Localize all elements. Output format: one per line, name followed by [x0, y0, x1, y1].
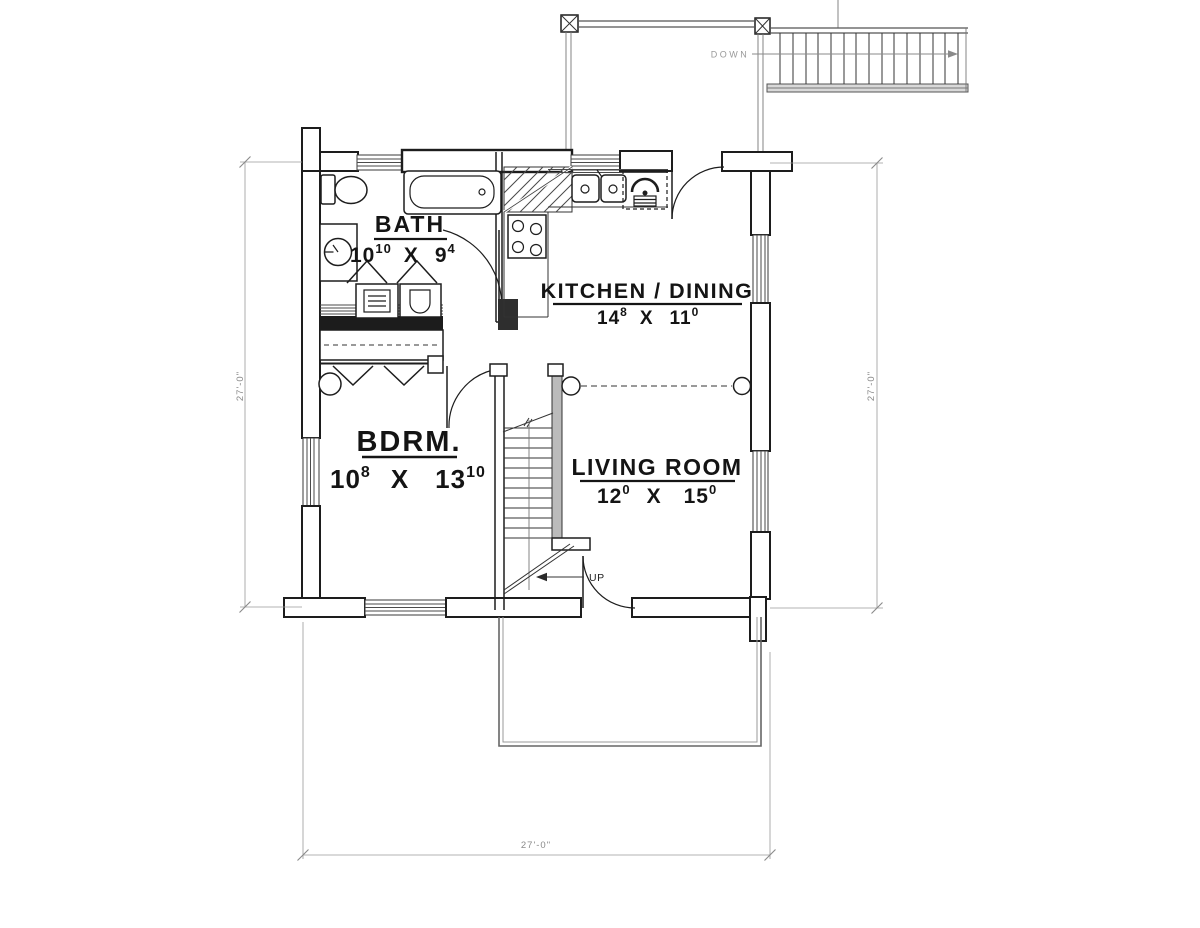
post-icon: [319, 373, 341, 395]
down-arrowhead-icon: [948, 50, 958, 58]
entry-door: [672, 167, 724, 219]
wall-end-cap: [548, 364, 563, 376]
bath-label: BATH 1010X94: [350, 211, 456, 267]
window-top-2: [571, 155, 620, 170]
floor-plan-page: DOWN: [0, 0, 1200, 928]
post-icon: [562, 377, 580, 395]
up-arrowhead-icon: [536, 573, 547, 581]
stair-treads: [780, 33, 958, 84]
beam-and-posts: [319, 366, 751, 395]
washer-icon: [356, 284, 398, 318]
corner-log: [750, 597, 766, 641]
dimension-right: 27'-0": [770, 158, 883, 614]
kitchen-sink-icon: [572, 170, 626, 202]
window-left: [303, 438, 319, 506]
bifold-door-marks: [333, 366, 424, 385]
bedroom-closet: [320, 330, 443, 373]
kitchen-dimensions: 148X110: [597, 305, 699, 329]
svg-text:27'-0": 27'-0": [521, 840, 551, 851]
dimension-left: 27'-0": [235, 157, 302, 613]
range-icon: [508, 215, 546, 258]
svg-text:KITCHEN / DINING: KITCHEN / DINING: [541, 279, 754, 303]
deck-edge-left: [566, 32, 571, 152]
wall-end-cap: [490, 364, 507, 376]
window-top-1: [357, 155, 402, 170]
stair-wall-right: [552, 375, 562, 538]
counter-end-wall: [498, 299, 518, 330]
svg-text:LIVING ROOM: LIVING ROOM: [571, 454, 742, 480]
corner-log: [722, 152, 792, 171]
wall-end-cap: [428, 356, 443, 373]
toilet-icon: [321, 175, 367, 204]
refrigerator-icon: [623, 171, 667, 209]
upper-deck: DOWN: [561, 0, 968, 152]
dimension-bottom: 27'-0": [298, 622, 776, 861]
svg-text:BATH: BATH: [375, 211, 445, 237]
floor-plan-drawing: DOWN: [0, 0, 1200, 928]
window-right-2: [753, 451, 768, 532]
svg-text:27'-0": 27'-0": [866, 371, 877, 401]
interior-stairs: UP: [490, 364, 605, 610]
dryer-icon: [400, 284, 441, 317]
stair-cut-line: [503, 413, 553, 432]
deck-edge-right: [758, 34, 763, 152]
window-bottom: [365, 600, 446, 615]
corner-log: [284, 598, 365, 617]
kitchen-dining-label: KITCHEN / DINING 148X110: [541, 279, 754, 329]
living-room-dimensions: 120X150: [597, 482, 717, 508]
deck-railing: [578, 21, 755, 27]
bedroom-dimensions: 108X1310: [330, 464, 486, 494]
bedroom-label: BDRM. 108X1310: [330, 426, 486, 494]
post-icon: [734, 378, 751, 395]
stair-wall-left: [495, 376, 504, 610]
living-room-label: LIVING ROOM 120X150: [571, 454, 742, 508]
window-right-1: [753, 235, 768, 303]
bathtub-icon: [404, 171, 501, 214]
stairs-down-label: DOWN: [711, 50, 750, 60]
exterior-walls: [284, 128, 792, 641]
svg-text:27'-0": 27'-0": [235, 371, 246, 401]
winder-line: [504, 544, 574, 594]
bedroom-door: [447, 366, 493, 428]
lower-deck: [499, 617, 761, 746]
stairs-up-label: UP: [589, 572, 605, 584]
stair-treads: [504, 428, 552, 538]
bath-dimensions: 1010X94: [350, 241, 456, 267]
svg-text:BDRM.: BDRM.: [356, 426, 461, 458]
deck-stairs-down: DOWN: [711, 28, 968, 92]
corner-counter: [504, 167, 572, 212]
